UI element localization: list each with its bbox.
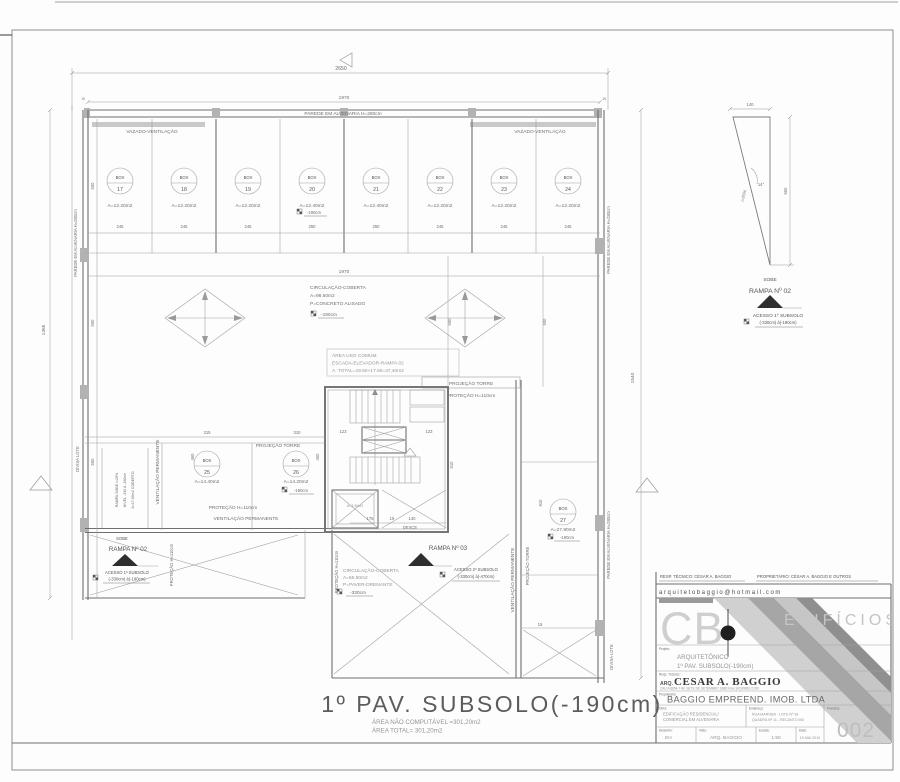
dim-15-rc: 15: [538, 622, 543, 627]
box-25-area: A=14.40m2: [195, 479, 220, 485]
tb-obra-l1: EDIFICAÇÃO RESIDENCIAL/: [663, 712, 720, 717]
box-24-label: BOX: [564, 175, 573, 180]
dim-310: 310: [294, 430, 302, 435]
ramp-detail-title: RAMPA Nº 02: [749, 288, 791, 295]
dim-15-right: 15: [602, 97, 606, 101]
box-20-dim: 250: [309, 224, 317, 229]
dim-460-b: 460: [315, 453, 320, 461]
direction-diamond-right: [425, 289, 505, 347]
plan-title-area: 1º PAV. SUBSOLO(-190cm) ÁREA NÃO COMPUTÁ…: [321, 691, 663, 735]
tb-data-val: 15 MAI 2019: [800, 736, 820, 740]
box-24-dim: 245: [565, 224, 573, 229]
box-17: BOX 17 A=12.20m2 245: [107, 168, 133, 229]
ramp-detail-sobe: SOBE: [763, 277, 776, 283]
rampa-left-l1: RAMPA SOBE i=25%: [115, 472, 119, 507]
box-22-label: BOX: [436, 175, 445, 180]
dim-1365: 1365: [41, 324, 47, 335]
rampa03-acesso1: ACESSO 2º SUBSOLO: [454, 567, 499, 572]
protecao-top-label: PROTEÇÃO H=110cm: [447, 392, 496, 399]
level-marker-icon: [548, 534, 553, 539]
box-21: BOX 21 A=12.40m2 250: [363, 168, 389, 229]
box-18-dim: 245: [181, 224, 189, 229]
box-23-num: 23: [501, 187, 507, 193]
box-24: BOX 24 A=12.20m2 245: [555, 168, 581, 229]
stair-flight-bottom: [350, 457, 420, 483]
marker-triangle-right: [636, 478, 658, 492]
box-row-top: VAZADO-VENTILAÇÃO VAZADO-VENTILAÇÃO PARE…: [85, 111, 600, 253]
box-27: BOX 27 A=27.90m2 -190cm: [548, 499, 580, 541]
tb-prop-row: PROPRIETÁRIO: CÉSAR A. BAGGIO E OUTROS: [757, 574, 851, 579]
protecao-v-a: PROTEÇÃO H=110cm: [169, 543, 174, 586]
circulacao-top-l1: CIRCULAÇÃO-COBERTA: [310, 284, 367, 291]
logo-circle: [721, 626, 736, 641]
marker-triangle-top: [340, 53, 352, 67]
ramp-angle: 14°: [758, 182, 765, 187]
proj-torre-top-label: PROJEÇÃO TORRE: [449, 380, 493, 387]
box-18-label: BOX: [180, 175, 189, 180]
tb-projeto-l2: 1º PAV. SUBSOLO(-190cm): [677, 663, 753, 670]
dim-460-a: 460: [190, 453, 195, 461]
vazado-label-left: VAZADO-VENTILAÇÃO: [126, 128, 178, 135]
dim-123-right: 123: [426, 429, 434, 434]
drawing-sheet: 2650 1970 15 15 VAZADO-VENTILAÇÃO VAZADO…: [0, 0, 900, 782]
plan-title: 1º PAV. SUBSOLO(-190cm): [321, 691, 663, 717]
dim-500-left-b: 500: [90, 319, 95, 327]
pit-box: A=3.30m2: [332, 490, 378, 528]
box-25: BOX 25 A=14.40m2: [194, 451, 220, 485]
box-18: BOX 18 A=12.20m2 245: [171, 168, 197, 229]
dim-15-mid: 15: [390, 516, 395, 521]
wall-label-right-upper: PAREDE EM ALVENARIA H=280cm: [606, 206, 611, 274]
elevator-shaft: [362, 427, 406, 453]
tb-endereco-l1: RUA MAROBA - LOTE Nº 28: [752, 713, 798, 717]
box-25-num: 25: [204, 470, 210, 476]
box-19-dim: 245: [245, 224, 253, 229]
box-21-area: A=12.40m2: [364, 203, 389, 209]
box-19: BOX 19 A=12.20m2 245: [235, 168, 261, 229]
plan-area-total: ÁREA TOTAL= 301,20m2: [372, 728, 443, 735]
dim-550-left: 550: [90, 458, 95, 466]
divisa-lote-left: DIVISA LOTE: [75, 446, 80, 472]
level-marker-icon: [744, 319, 749, 324]
area-comum-l2: ESCADA-ELEVADOR-RAMPA 02: [332, 361, 404, 367]
dim-500-left-a: 500: [90, 182, 95, 190]
tb-desenho-label: Desenho:: [659, 729, 673, 733]
tb-endereco-label: Endereço:: [749, 707, 764, 711]
box-26-label: BOX: [292, 458, 301, 463]
box-18-num: 18: [181, 187, 187, 193]
dim-15-left: 15: [81, 97, 85, 101]
rampa-left-l2: NIVEL -330 A -190cm: [123, 473, 127, 507]
left-lower-region: 315 310 PROJEÇÃO TORRE BOX 25 A=14.40m2 …: [30, 209, 325, 530]
box-22-area: A=12.20m2: [428, 203, 453, 209]
circulation-area: 1970 CIRCULAÇÃO-COBERTA A=98.50m2 P=CONC…: [88, 256, 600, 399]
ramp-dim-560: 560: [783, 187, 788, 195]
tb-resp-row: RESP. TÉCNICO: CÉSAR A. BAGGIO: [660, 574, 732, 579]
dim-123-left: 123: [340, 429, 348, 434]
logo-edificios-text: EDIFÍCIOS: [784, 610, 900, 629]
circulacao-bottom-level: -330cm: [350, 590, 366, 596]
tb-desenho-val: EH: [665, 735, 672, 741]
box-27-area: A=27.90m2: [551, 527, 576, 533]
box-18-area: A=12.20m2: [172, 203, 197, 209]
dim-140: 140: [409, 516, 417, 521]
rampa03-title: RAMPA Nº 03: [429, 545, 468, 552]
rampa02-acesso2: (-330cm) à(-190cm): [109, 577, 147, 582]
box-20: BOX 20 A=12.40m2 -190cm 250: [297, 168, 327, 229]
proj-torre-v: PROJEÇÃO TORRE: [525, 546, 530, 585]
dim-510: 510: [449, 461, 454, 469]
tb-data-label: Data:: [799, 729, 807, 733]
title-block: RESP. TÉCNICO: CÉSAR A. BAGGIO PROPRIETÁ…: [656, 572, 900, 743]
box-23-area: A=12.20m2: [492, 203, 517, 209]
box-17-dim: 245: [117, 224, 125, 229]
marker-triangle-left: [30, 476, 52, 490]
level-marker-icon: [297, 209, 302, 214]
box-20-num: 20: [309, 187, 315, 193]
vent-perm-left-h: VENTILAÇÃO PERMANENTE: [213, 515, 278, 522]
box-26-level: -190cm: [294, 488, 308, 493]
tb-prop-name: BAGGIO EMPREEND. IMOB. LTDA: [667, 695, 826, 705]
box-19-label: BOX: [244, 175, 253, 180]
rampa02-sobe: SOBE: [116, 536, 128, 541]
plan-area-nc: ÁREA NÃO COMPUTÁVEL =301,20m2: [372, 719, 481, 726]
dim-315: 315: [204, 430, 212, 435]
circulacao-bottom-l1: CIRCULAÇÃO-COBERTA: [343, 567, 400, 574]
circulacao-top-l2: A=98.50m2: [310, 293, 335, 299]
dim-top-width-b: 1970: [339, 269, 350, 275]
ramp-slope: i=25%: [740, 189, 748, 202]
box-22-dim: 245: [437, 224, 445, 229]
tb-resp-detail: CAU A 8854-7 AV. SETE DE SETEMBRO 1888 F…: [660, 687, 759, 691]
box-27-label: BOX: [559, 506, 568, 511]
vazado-strip-left: [92, 122, 205, 127]
box-21-dim: 250: [373, 224, 381, 229]
top-dimensions: 2650 1970 15 15: [70, 53, 610, 110]
box-24-num: 24: [565, 187, 571, 193]
wall-label-left: PAREDE EM ALVENARIA H=280cm: [73, 209, 78, 277]
box-27-num: 27: [560, 518, 566, 524]
tb-prancha-num: 002: [837, 719, 875, 742]
box-20-level: -190cm: [307, 210, 321, 215]
ramp-detail: 140 i=25% 14° 560 SOBE RAMPA Nº 02 ACESS…: [728, 102, 803, 327]
proj-torre-left-label: PROJEÇÃO TORRE: [256, 442, 300, 449]
dim-910: 910: [538, 499, 543, 507]
rampa-left-l3: A=17.60m2 COBERTO: [131, 471, 135, 508]
dim-top-width: 1970: [339, 95, 350, 101]
rampa03-acesso2: (-330cm) à(-470cm): [458, 574, 496, 579]
box-20-label: BOX: [308, 175, 317, 180]
box-27-level: -190cm: [560, 535, 574, 540]
ramp-arrow-icon: [757, 295, 783, 308]
dim-1540: 1540: [630, 372, 636, 383]
tb-escala-val: 1:50: [771, 735, 781, 741]
protecao-left-label: PROTEÇÃO H=110cm: [209, 504, 258, 511]
tb-prancha-label: Prancha:: [827, 707, 840, 711]
area-comum-l1: ÁREA USO COMUM: [332, 352, 377, 359]
tb-visto-label: Visto:: [699, 729, 707, 733]
wall-label-top: PAREDE EM ALVENARIA H=280cm: [304, 111, 381, 117]
direction-diamond-left: [165, 289, 245, 347]
wall-label-right-lower: PAREDE EM ALVENARIA H=280cm: [606, 511, 611, 579]
level-marker-icon: [440, 572, 445, 577]
box-21-num: 21: [373, 187, 379, 193]
stair-flight-top: [350, 389, 400, 485]
tb-projeto-label: Projeto:: [659, 647, 670, 651]
box-17-num: 17: [117, 187, 123, 193]
vent-perm-left-v: VENTILAÇÃO PERMANENTE: [154, 439, 161, 504]
plan-svg: 2650 1970 15 15 VAZADO-VENTILAÇÃO VAZADO…: [0, 0, 900, 782]
vent-perm-right-v: VENTILAÇÃO PERMANENTE: [509, 547, 516, 612]
box-22-num: 22: [437, 187, 443, 193]
circulacao-bottom-l2: A=65.90m2: [343, 575, 368, 581]
level-marker-icon: [282, 487, 287, 492]
ramp-arrow-icon: [112, 554, 138, 566]
tb-escala-label: Escala:: [759, 729, 770, 733]
ramp-detail-acesso2: (-330cm) à(-190cm): [760, 320, 798, 325]
box-19-num: 19: [245, 187, 251, 193]
ramp-detail-acesso1: ACESSO 1º SUBSOLO: [753, 313, 804, 319]
box-21-label: BOX: [372, 175, 381, 180]
box-17-area: A=12.20m2: [108, 203, 133, 209]
dim-500-mid-b: 500: [542, 318, 547, 326]
box-26: BOX 26 A=14.20m2 -190cm: [282, 451, 314, 494]
area-comum-l3: A. TOTAL=19.60+17.60=37,40m2: [332, 368, 404, 374]
box-23-label: BOX: [500, 175, 509, 180]
ramp-arrow-icon: [408, 553, 434, 566]
dim-500-mid-a: 500: [447, 318, 452, 326]
box-26-num: 26: [293, 470, 299, 476]
circulacao-bottom-l3: P=PAVER-DRENANTE: [343, 582, 393, 588]
circulacao-top-l3: P=CONCRETO ALISADO: [310, 301, 365, 307]
level-marker-icon: [311, 311, 316, 316]
box-19-area: A=12.20m2: [236, 203, 261, 209]
rampa02-area: SOBE RAMPA Nº 02 ACESSO 1º SUBSOLO (-330…: [90, 535, 298, 595]
box-20-area: A=12.40m2: [300, 203, 325, 209]
tb-email: arquitetobaggio@hotmail.com: [659, 590, 782, 596]
box-25-label: BOX: [203, 458, 212, 463]
circulacao-top-level: -190cm: [321, 312, 337, 318]
rampa03-desce: DESCE: [403, 525, 418, 530]
rampa02-title: RAMPA Nº 02: [109, 546, 148, 553]
dim-175: 175: [367, 516, 375, 521]
rampa03-area: DESCE RAMPA Nº 03 ACESSO 2º SUBSOLO (-33…: [334, 525, 530, 674]
ramp-dim-140: 140: [747, 102, 755, 107]
tb-obra-l2: COMERCIAL EM ALVENARIA: [663, 717, 720, 722]
box-26-area: A=14.20m2: [284, 479, 309, 485]
tb-projeto-l1: ARQUITETÔNICO: [677, 654, 729, 661]
protecao-v-b: PROTEÇÃO H=110cm: [334, 550, 339, 593]
vazado-strip-right: [470, 122, 596, 127]
tb-visto-val: ARQ. BAGGIO: [710, 735, 742, 741]
divisa-lote-right: DIVISA LOTE: [609, 644, 614, 670]
tb-endereco-l2: QUADRA Nº 11 - RECANTO MG: [752, 718, 805, 722]
dim-overall: 2650: [335, 66, 347, 72]
box-23-dim: 245: [501, 224, 509, 229]
rampa02-acesso1: ACESSO 1º SUBSOLO: [105, 570, 150, 575]
vazado-label-right: VAZADO-VENTILAÇÃO: [514, 128, 566, 135]
tb-obra-label: Obra:: [659, 707, 667, 711]
box-24-area: A=12.20m2: [556, 203, 581, 209]
box-22: BOX 22 A=12.20m2 245: [427, 168, 453, 229]
box-17-label: BOX: [116, 175, 125, 180]
pit-area-label: A=3.30m2: [347, 504, 363, 508]
stair-core: 123 123 A=3.30m2 175 15 140: [325, 387, 448, 532]
box-23: BOX 23 A=12.20m2 245: [491, 168, 517, 229]
